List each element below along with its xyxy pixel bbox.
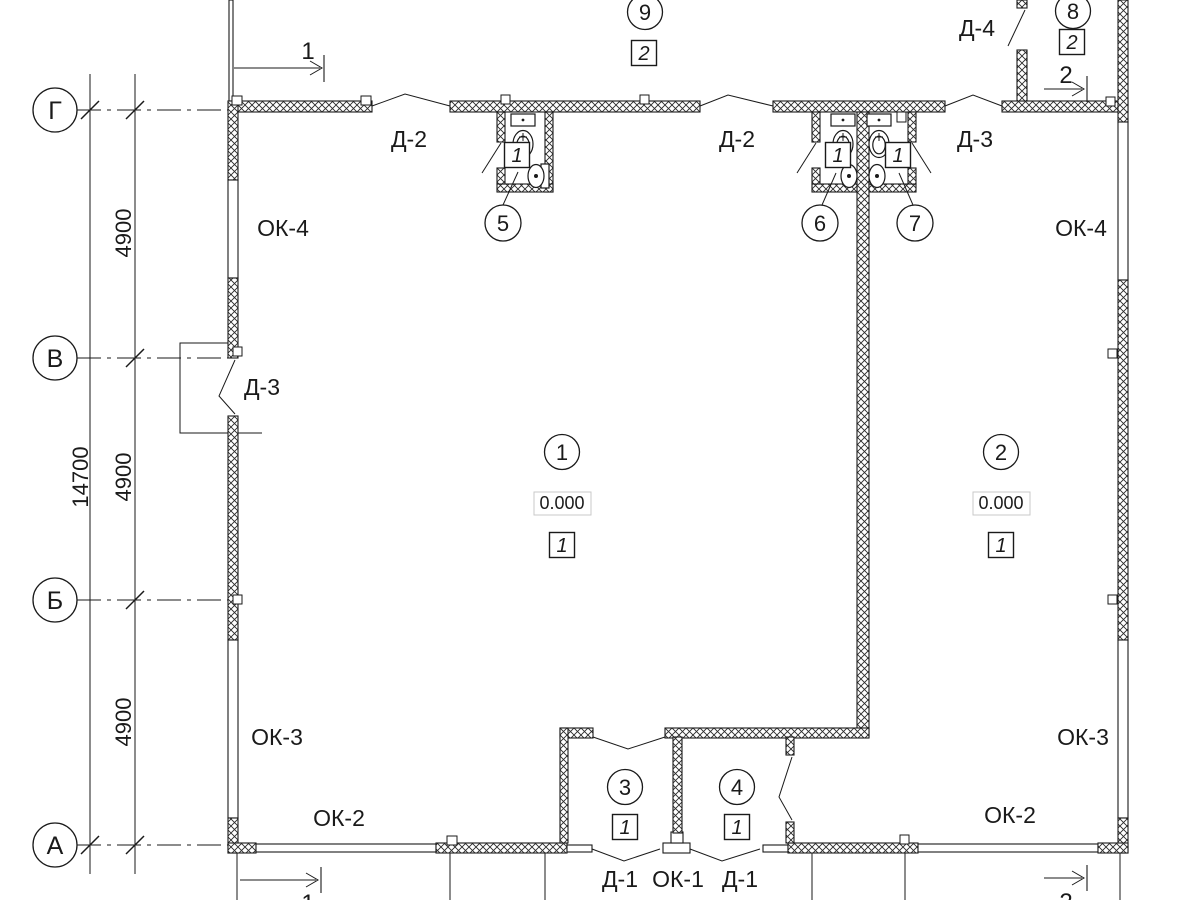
label-d2-left: Д-2 (391, 126, 427, 152)
window-ok1 (663, 843, 690, 853)
right-wall-segment (1118, 0, 1128, 122)
label-ok2-left: ОК-2 (313, 805, 365, 831)
wall-tick (1108, 595, 1117, 604)
label-d3-top: Д-3 (957, 126, 993, 152)
window-ok4-right (1118, 122, 1128, 280)
sink-icon (528, 164, 549, 188)
section-label-1: 1 (301, 38, 314, 65)
wall-tick (361, 96, 371, 105)
section-label-2: 2 (1059, 889, 1072, 900)
finish-label-room3: 1 (619, 817, 630, 839)
axis-label-b: Б (47, 587, 63, 615)
room-number-1: 1 (556, 440, 568, 465)
wall-tick (640, 95, 649, 104)
finish-label-room8: 2 (1065, 32, 1077, 54)
vestibule-partition-wall (673, 737, 682, 833)
door-threshold-d1-right (763, 845, 788, 852)
window-ok4-left (228, 180, 238, 278)
vestibule-left-wall (560, 728, 568, 843)
wc7-wall-stub (908, 168, 916, 184)
vestibule-right-wall-stub (786, 822, 794, 843)
section-mark-1-top: 1 (234, 38, 324, 82)
label-ok3-right: ОК-3 (1057, 724, 1109, 750)
section-mark-2-top: 2 (1044, 62, 1087, 102)
wall-tick (1108, 349, 1117, 358)
wc6-wall-stub (812, 168, 820, 184)
elevation-marks: 0.000 0.000 (534, 492, 1030, 515)
door-opening-d1-right (690, 849, 760, 861)
dimension-lines: 4900 4900 4900 14700 (68, 74, 144, 874)
dimension-14700-total: 14700 (68, 446, 93, 507)
upper-wall-edge-left (229, 0, 233, 101)
finish-label-room1: 1 (556, 535, 567, 557)
door-opening-d1-left (592, 849, 660, 861)
finish-label-room2: 1 (995, 535, 1006, 557)
label-ok2-right: ОК-2 (984, 802, 1036, 828)
wc6-wall-stub (812, 112, 820, 142)
door-opening-d3-left (219, 360, 235, 414)
dimension-4900-ba: 4900 (111, 698, 136, 747)
floor-plan-canvas: 4900 4900 4900 14700 Г В Б А (0, 0, 1200, 900)
vestibule-top-wall (665, 728, 869, 738)
room-bubbles: 1 2 3 4 5 6 7 8 9 (485, 0, 1091, 805)
room-number-8: 8 (1067, 0, 1079, 24)
elevation-value-room2: 0.000 (978, 493, 1023, 513)
room-number-5: 5 (497, 211, 509, 236)
bottom-wall-segment (1098, 843, 1128, 853)
door-opening-room4 (779, 757, 792, 820)
left-wall-segment (228, 101, 238, 180)
axis-label-a: А (47, 832, 64, 860)
top-wall-segment (450, 101, 700, 112)
d4-wall-stub (1017, 50, 1027, 101)
wall-tick (232, 96, 242, 105)
opening-symbols (219, 10, 1025, 861)
left-wall-segment (228, 416, 238, 640)
label-d2-right: Д-2 (719, 126, 755, 152)
wall-tick (501, 95, 510, 104)
label-d1-left: Д-1 (602, 866, 638, 892)
finish-label-room9: 2 (637, 43, 649, 65)
d4-wall-stub (1017, 0, 1027, 8)
door-opening-d3-top (945, 95, 1002, 106)
axis-label-g: Г (48, 97, 62, 125)
window-ok3-left (228, 640, 238, 818)
label-d4: Д-4 (959, 15, 995, 41)
door-opening-d2-right (700, 95, 773, 106)
section-mark-1-bottom: 1 (240, 867, 321, 900)
section-label-1: 1 (301, 890, 314, 900)
door-opening-d4 (1008, 10, 1025, 46)
window-ok1-mullion (671, 832, 683, 843)
section-mark-2-bottom: 2 (1044, 865, 1087, 900)
room-number-2: 2 (995, 440, 1007, 465)
wc5-wall-stub (497, 168, 505, 184)
wall-tick (233, 347, 242, 356)
wall-tick (900, 835, 909, 844)
bottom-wall-segment (228, 843, 256, 853)
label-d1-right: Д-1 (722, 866, 758, 892)
finish-label-room6: 1 (832, 145, 843, 167)
window-ok3-right (1118, 640, 1128, 818)
top-wall-segment (773, 101, 945, 112)
axis-grid (77, 110, 236, 845)
finish-label-room4: 1 (731, 817, 742, 839)
room-number-7: 7 (909, 211, 921, 236)
floor-plan-drawing: 4900 4900 4900 14700 Г В Б А (0, 0, 1200, 900)
vestibule-right-wall-stub (786, 737, 794, 755)
label-ok1: ОК-1 (652, 866, 704, 892)
finish-label-room7: 1 (892, 145, 903, 167)
bottom-wall-segment (788, 843, 918, 853)
room-number-4: 4 (731, 775, 743, 800)
room-number-3: 3 (619, 775, 631, 800)
right-wall-segment (1118, 280, 1128, 640)
label-ok3-left: ОК-3 (251, 724, 303, 750)
axis-label-v: В (47, 345, 64, 373)
passage-room3-to-hall1 (593, 737, 665, 749)
finish-label-room5: 1 (511, 145, 522, 167)
room-number-6: 6 (814, 211, 826, 236)
section-label-2: 2 (1059, 62, 1072, 89)
dimension-4900-vb: 4900 (111, 453, 136, 502)
label-ok4-left: ОК-4 (257, 215, 309, 241)
label-d3-left: Д-3 (244, 374, 280, 400)
door-threshold-d1-left (567, 845, 592, 852)
wall-tick (447, 836, 457, 845)
window-ok2-right (918, 844, 1098, 852)
door-opening-d2-left (372, 94, 450, 106)
left-wall-segment (228, 278, 238, 358)
dimension-4900-gv: 4900 (111, 209, 136, 258)
sink-icon (869, 165, 885, 188)
wall-tick (233, 595, 242, 604)
room-number-9: 9 (639, 0, 651, 25)
window-ok2-left (256, 844, 436, 852)
elevation-value-room1: 0.000 (539, 493, 584, 513)
label-ok4-right: ОК-4 (1055, 215, 1107, 241)
wc5-wall-stub (497, 112, 505, 142)
top-wall-segment (232, 101, 372, 112)
section-marks: 1 1 2 2 (234, 38, 1087, 900)
wall-tick (897, 112, 906, 122)
wall-tick (1106, 97, 1115, 106)
central-wall (857, 112, 869, 737)
wc7-wall-stub (908, 112, 916, 142)
